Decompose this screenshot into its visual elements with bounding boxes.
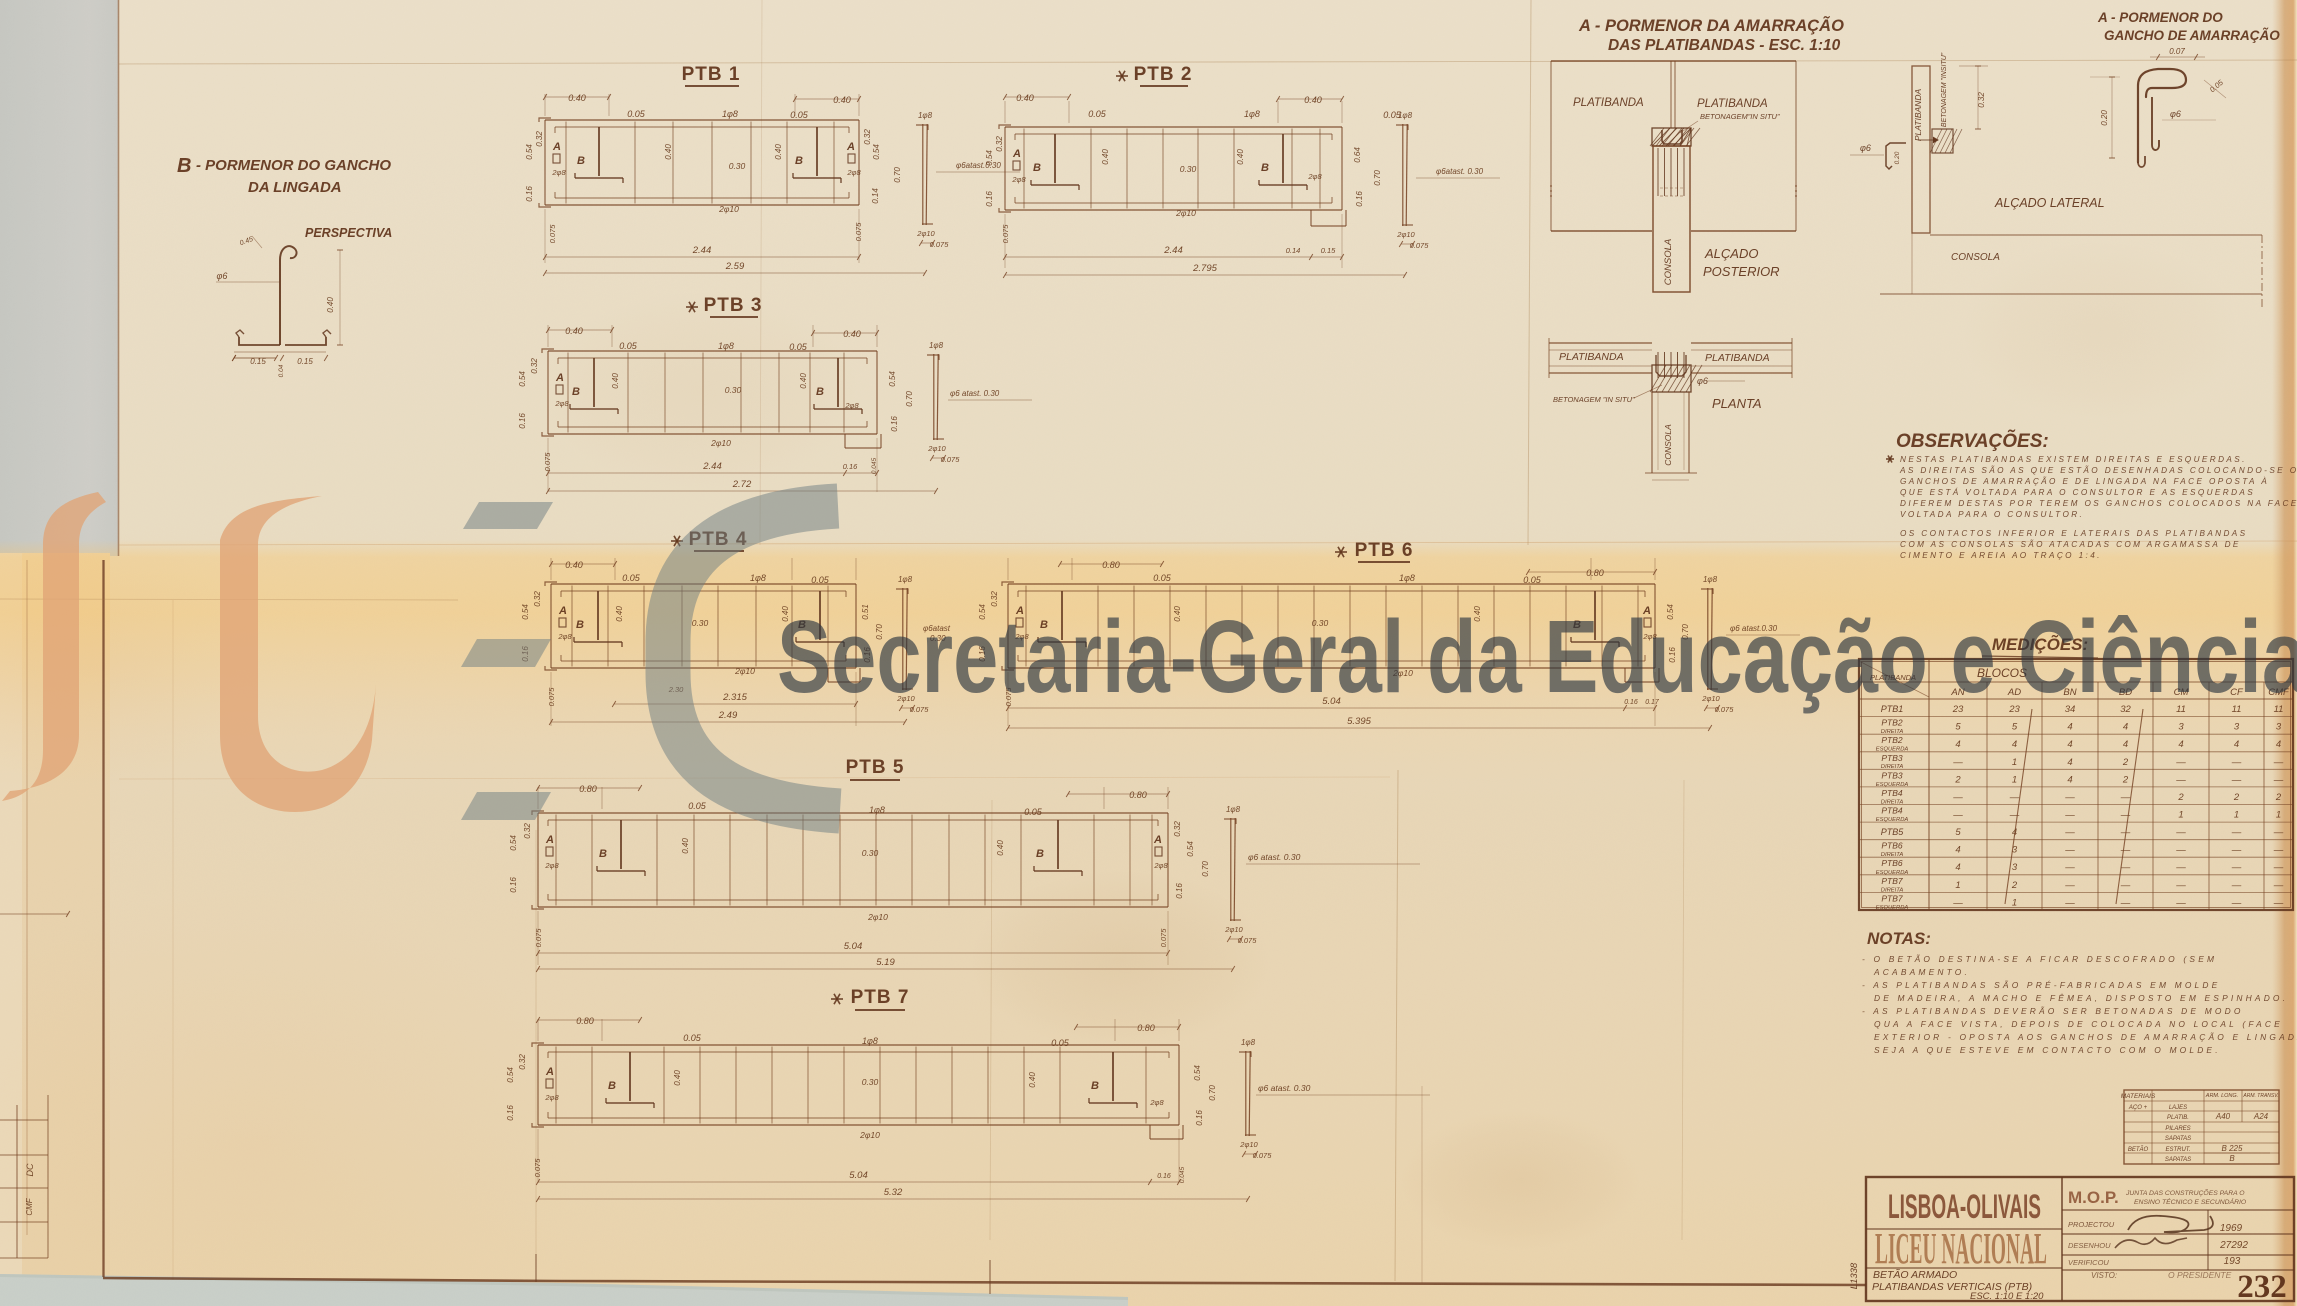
- svg-text:Secretaria-Geral da Educação e: Secretaria-Geral da Educação e Ciência: [777, 599, 2297, 714]
